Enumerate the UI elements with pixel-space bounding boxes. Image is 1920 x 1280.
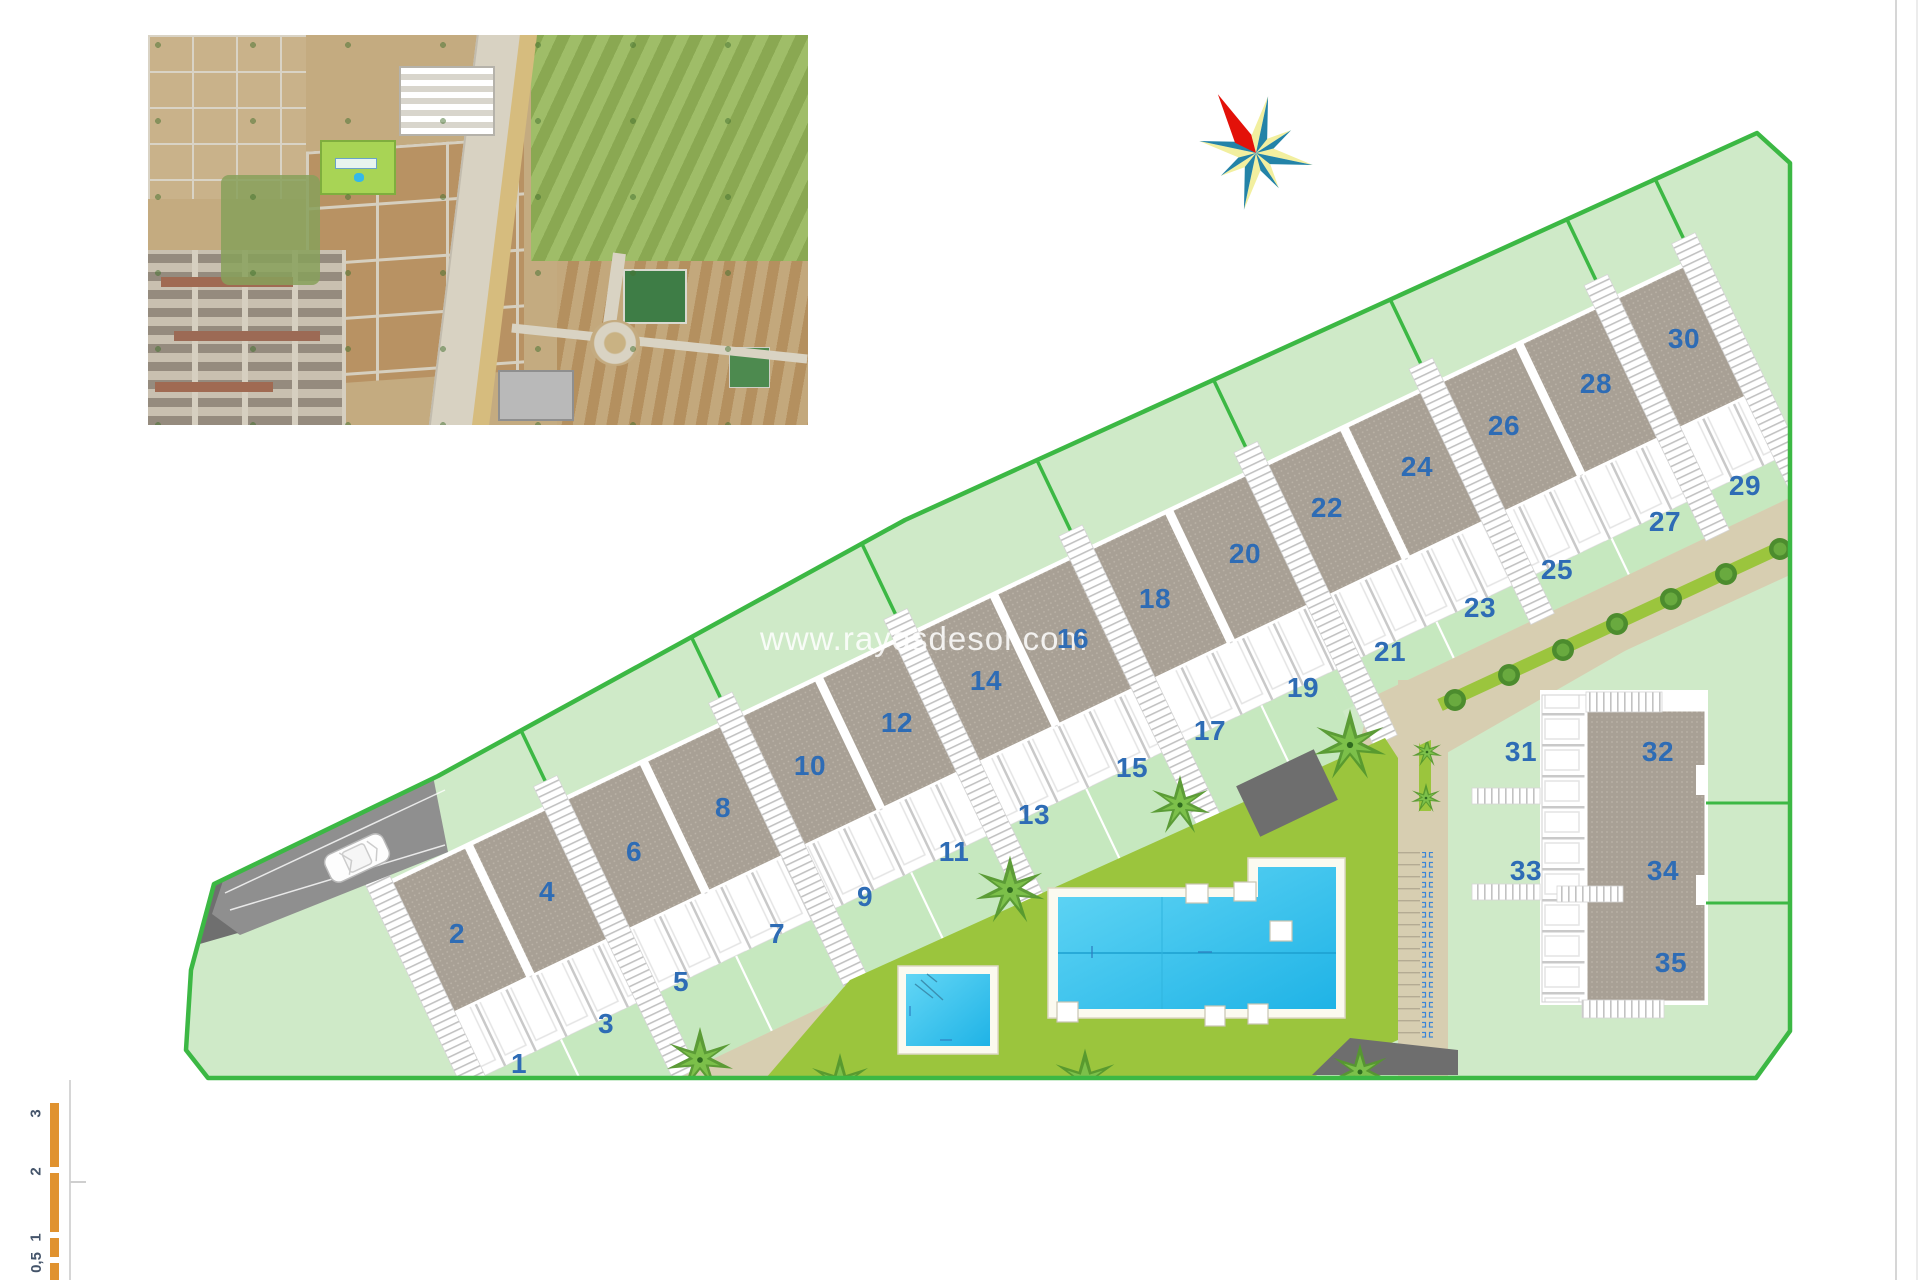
aerial-photo-inset [148, 35, 808, 425]
scale-bar [50, 1103, 59, 1280]
plot-label: 29 [1729, 470, 1761, 502]
plot-label: 3 [598, 1008, 614, 1040]
kids-pool [898, 966, 998, 1054]
scale-label: 3 [28, 1109, 45, 1117]
plot-label: 23 [1464, 592, 1496, 624]
compass-rose-icon [1187, 84, 1325, 222]
scale-label: 0,5 [28, 1252, 45, 1273]
plot-label: 28 [1580, 368, 1612, 400]
plot-label: 11 [939, 836, 970, 868]
plot-label: 15 [1116, 752, 1148, 784]
plot-label: 26 [1488, 410, 1520, 442]
plot-label: 32 [1642, 736, 1674, 768]
plot-label: 34 [1647, 855, 1679, 887]
plot-label: 35 [1655, 947, 1687, 979]
scale-label: 1 [28, 1233, 45, 1241]
bike-rack-markers [1422, 852, 1433, 1038]
aerial-trees [148, 35, 808, 425]
plot-label: 17 [1194, 715, 1226, 747]
scale-label: 2 [28, 1167, 45, 1175]
plot-label: 30 [1668, 323, 1700, 355]
plot-label: 9 [857, 881, 873, 913]
plot-label: 8 [715, 792, 731, 824]
plot-label: 24 [1401, 451, 1433, 483]
plot-label: 22 [1311, 492, 1343, 524]
plot-label: 14 [970, 665, 1002, 697]
site-plan-page: www.rayosdesol.com 1 2 3 4 5 6 7 8 9 10 … [0, 0, 1920, 1280]
plot-label: 10 [794, 750, 826, 782]
plot-label: 1 [511, 1048, 527, 1080]
plot-label: 4 [539, 876, 555, 908]
plot-label: 21 [1374, 636, 1406, 668]
plot-label: 27 [1649, 506, 1681, 538]
plot-label: 5 [673, 966, 689, 998]
plot-label: 33 [1510, 855, 1542, 887]
plot-label: 16 [1057, 623, 1089, 655]
plot-label: 12 [881, 707, 913, 739]
plot-label: 18 [1139, 583, 1171, 615]
plot-label: 6 [626, 836, 642, 868]
plot-label: 25 [1541, 554, 1573, 586]
plot-label: 13 [1018, 799, 1050, 831]
plot-label: 31 [1505, 736, 1537, 768]
plot-label: 20 [1229, 538, 1261, 570]
plot-label: 2 [449, 918, 465, 950]
watermark: www.rayosdesol.com [760, 620, 1088, 658]
plot-label: 7 [769, 918, 785, 950]
plot-label: 19 [1287, 672, 1319, 704]
